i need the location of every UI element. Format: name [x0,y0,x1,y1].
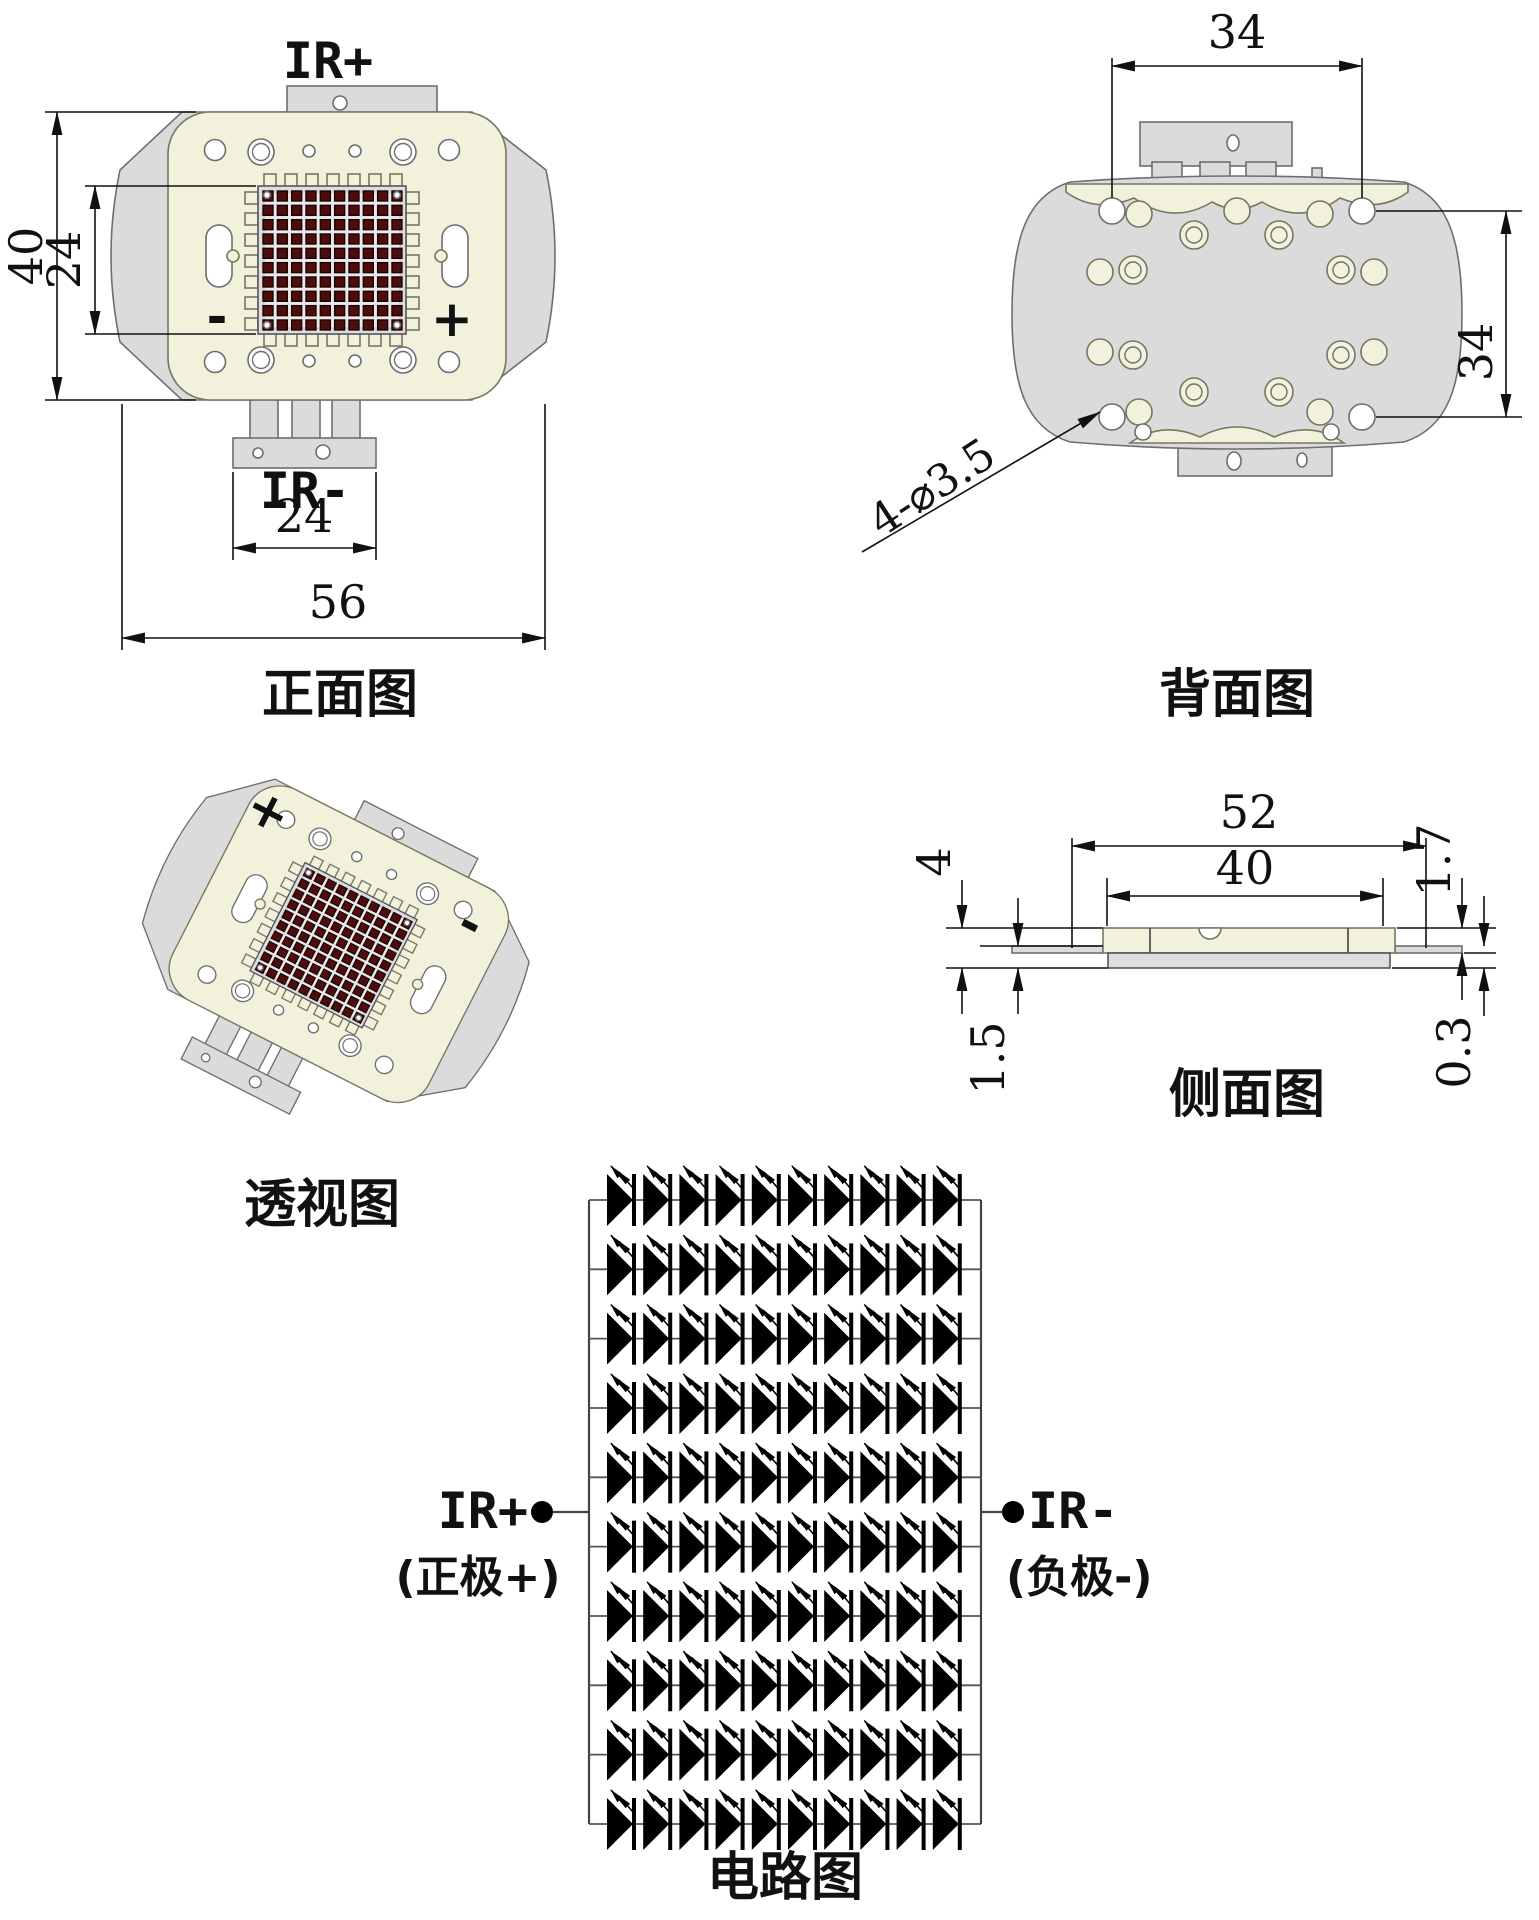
led-symbol [679,1374,706,1434]
thermal-pad [1361,259,1387,285]
led-symbol [860,1443,887,1503]
thermal-pad-ringed [1180,221,1208,249]
perspective-view: + - 透视图 [89,733,567,1235]
led-symbol [897,1305,924,1365]
thermal-pad [1087,259,1113,285]
led-symbol [607,1651,634,1711]
led-symbol [643,1790,670,1850]
led-symbol [643,1166,670,1226]
led-symbol [933,1235,960,1295]
led-symbol [607,1790,634,1850]
led-symbol [860,1790,887,1850]
svg-text:34: 34 [1449,323,1503,382]
svg-text:52: 52 [1220,785,1279,839]
led-symbol [824,1374,851,1434]
thermal-pad-ringed [1180,378,1208,406]
led-symbol [824,1235,851,1295]
led-symbol [607,1443,634,1503]
dim-side-left: 4 1.5 [907,847,1108,1094]
side-base [1108,953,1390,968]
led-symbol [679,1513,706,1573]
led-symbol [824,1790,851,1850]
led-symbol [607,1166,634,1226]
dim-back-top-34: 34 [1112,5,1362,198]
svg-text:34: 34 [1208,5,1267,59]
led-symbol [643,1582,670,1642]
led-symbol [607,1305,634,1365]
thermal-pad-ringed [1265,378,1293,406]
led-symbol [752,1721,779,1781]
small-hole [1323,424,1339,440]
side-lead-right [1395,946,1462,953]
svg-text:1.5: 1.5 [961,1021,1015,1094]
led-symbol [716,1721,743,1781]
led-symbol [824,1166,851,1226]
svg-text:40: 40 [1216,841,1275,895]
led-symbol [824,1582,851,1642]
led-symbol [643,1305,670,1365]
svg-text:1.7: 1.7 [1407,823,1461,896]
led-symbol [788,1443,815,1503]
led-symbol [607,1374,634,1434]
led-symbol [860,1305,887,1365]
svg-text:0.3: 0.3 [1427,1015,1481,1088]
led-symbol [897,1166,924,1226]
svg-text:24: 24 [37,231,91,290]
led-symbol [824,1513,851,1573]
led-symbol [860,1374,887,1434]
led-symbol [860,1166,887,1226]
led-symbol [824,1721,851,1781]
led-symbol [897,1513,924,1573]
small-hole [1135,424,1151,440]
thermal-pad [1361,339,1387,365]
led-symbol [607,1235,634,1295]
led-symbol [933,1443,960,1503]
led-symbol [679,1582,706,1642]
led-symbol [607,1721,634,1781]
led-symbol [716,1166,743,1226]
mounting-hole [1349,404,1375,430]
side-view: 52 40 4 1.5 1.7 [907,785,1496,1125]
led-symbol [788,1235,815,1295]
led-symbol [679,1790,706,1850]
circuit-diagram: IR+ (正极+) IR- (负极-) 电路图 [395,1166,1152,1908]
led-symbol [897,1651,924,1711]
circuit-cathode-label: IR- [1028,1482,1118,1540]
led-symbol [752,1374,779,1434]
led-symbol [716,1374,743,1434]
svg-text:56: 56 [309,575,368,629]
led-symbol [716,1790,743,1850]
thermal-pad [1307,201,1333,227]
led-symbol [897,1443,924,1503]
side-view-title: 侧面图 [1169,1065,1325,1125]
thermal-pad [1087,339,1113,365]
led-symbol [897,1582,924,1642]
dim-side-40: 40 [1107,841,1383,926]
led-symbol [860,1513,887,1573]
led-symbol [860,1235,887,1295]
front-view-title: 正面图 [262,665,418,725]
led-symbol [933,1305,960,1365]
led-symbol [752,1790,779,1850]
led-symbol [788,1721,815,1781]
svg-text:4-⌀3.5: 4-⌀3.5 [860,429,1005,548]
led-symbol [716,1235,743,1295]
led-symbol [824,1305,851,1365]
led-symbol [824,1443,851,1503]
led-symbol [643,1443,670,1503]
anode-terminal-dot [531,1501,553,1523]
thermal-pad [1224,198,1250,224]
led-symbol [716,1582,743,1642]
circuit-anode-sub: (正极+) [395,1552,560,1603]
circuit-title: 电路图 [707,1848,863,1908]
thermal-pad [1126,399,1152,425]
led-symbol [788,1374,815,1434]
front-plus-mark: + [431,290,473,348]
led-symbol [897,1721,924,1781]
led-symbol [679,1443,706,1503]
led-symbol [716,1443,743,1503]
circuit-anode-label: IR+ [438,1482,528,1540]
led-symbol [897,1374,924,1434]
led-symbol [897,1790,924,1850]
led-symbol [643,1651,670,1711]
led-symbol [933,1166,960,1226]
svg-text:24: 24 [275,489,334,543]
thermal-pad-ringed [1119,256,1147,284]
led-symbol [679,1651,706,1711]
led-symbol [752,1582,779,1642]
mounting-hole [1099,404,1125,430]
led-symbol [607,1513,634,1573]
led-symbol [933,1790,960,1850]
led-symbol [752,1166,779,1226]
led-symbol [679,1721,706,1781]
led-symbol [643,1721,670,1781]
led-symbol [897,1235,924,1295]
led-symbol [752,1651,779,1711]
led-symbol [679,1305,706,1365]
led-symbol [860,1651,887,1711]
led-symbol [643,1374,670,1434]
led-symbol [933,1721,960,1781]
led-symbol [788,1582,815,1642]
dim-side-right: 1.7 0.3 [1392,823,1496,1088]
side-body [1103,928,1395,953]
svg-text:4: 4 [907,847,961,876]
led-symbol [752,1305,779,1365]
front-minus-mark: - [207,288,228,346]
back-cream-band-bottom [1130,427,1344,443]
thermal-pad-ringed [1119,341,1147,369]
engineering-drawing-sheet: - + IR+ IR- 40 24 24 56 [0,0,1539,1920]
circuit-cathode-sub: (负极-) [1006,1552,1152,1603]
led-symbol [933,1582,960,1642]
led-symbol [643,1235,670,1295]
led-symbol [788,1651,815,1711]
thermal-pad-ringed [1327,256,1355,284]
led-symbol [679,1235,706,1295]
led-symbol [643,1513,670,1573]
mounting-hole [1349,198,1375,224]
led-symbol [933,1651,960,1711]
perspective-view-title: 透视图 [244,1175,400,1235]
back-view: 34 34 4-⌀3.5 背面图 [860,5,1522,725]
back-view-title: 背面图 [1159,665,1315,725]
led-symbol [788,1513,815,1573]
back-top-tab [1140,122,1322,182]
led-symbol [752,1443,779,1503]
thermal-pad [1126,201,1152,227]
led-symbol [860,1582,887,1642]
led-symbol [752,1235,779,1295]
side-lead-left [1012,946,1103,953]
led-symbol [607,1582,634,1642]
led-symbol [752,1513,779,1573]
led-symbol [788,1166,815,1226]
thermal-pad [1307,399,1333,425]
thermal-pad-ringed [1265,221,1293,249]
led-symbol [933,1374,960,1434]
thermal-pad-ringed [1327,341,1355,369]
led-symbol [860,1721,887,1781]
led-symbol [788,1305,815,1365]
front-anode-label: IR+ [283,32,373,90]
led-symbol [679,1166,706,1226]
led-symbol [824,1651,851,1711]
cathode-terminal-dot [1002,1501,1024,1523]
led-symbol [788,1790,815,1850]
front-view: - + IR+ IR- 40 24 24 56 [0,32,555,725]
mounting-hole [1099,198,1125,224]
led-symbol [716,1651,743,1711]
led-symbol [716,1305,743,1365]
led-symbol [933,1513,960,1573]
led-symbol [716,1513,743,1573]
dim-back-holes: 4-⌀3.5 [860,412,1100,552]
